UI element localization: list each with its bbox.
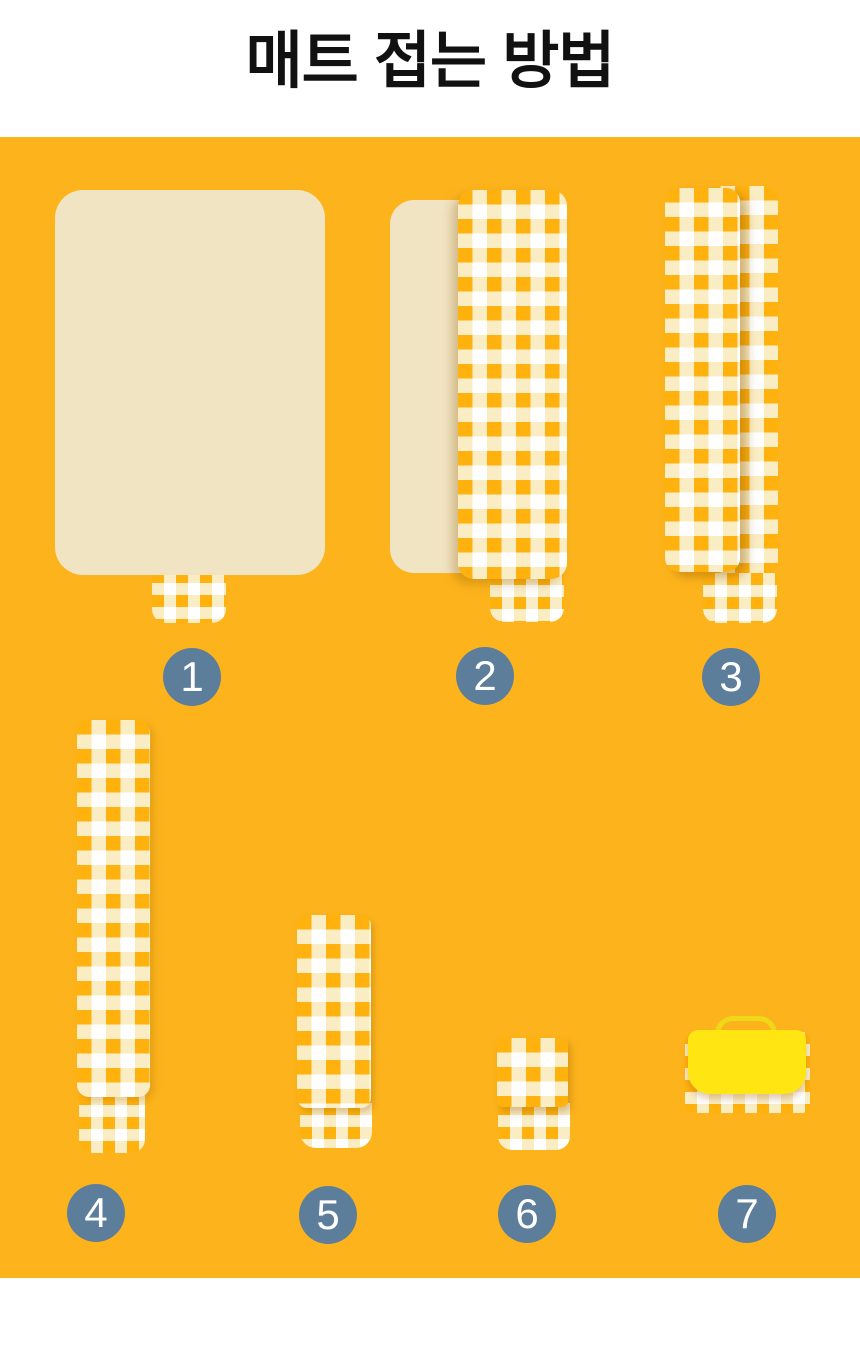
page-title: 매트 접는 방법 xyxy=(246,31,615,107)
instruction-panel: 1 2 3 4 5 6 7 xyxy=(0,137,860,1278)
strip-folded-quarter-icon xyxy=(497,1038,568,1107)
mat-tab-icon xyxy=(79,1093,145,1153)
step-3-badge: 3 xyxy=(702,648,760,706)
step-7-badge: 7 xyxy=(718,1185,776,1243)
mat-tab-icon xyxy=(152,571,226,623)
mat-tab-icon xyxy=(703,573,777,623)
step-1-badge: 1 xyxy=(163,648,221,706)
mat-tab-icon xyxy=(490,573,564,622)
mat-half-folded-icon xyxy=(458,190,567,579)
step-6-badge: 6 xyxy=(498,1185,556,1243)
step-2-badge: 2 xyxy=(456,647,514,705)
mat-tab-icon xyxy=(300,1103,372,1148)
strip-full-length-icon xyxy=(77,720,150,1097)
step-5-badge: 5 xyxy=(299,1186,357,1244)
product-infographic: 매트 접는 방법 1 2 3 4 5 6 7 xyxy=(0,0,860,1371)
header: 매트 접는 방법 xyxy=(0,0,860,137)
step-4-badge: 4 xyxy=(67,1184,125,1242)
packed-mat-flap-icon xyxy=(688,1030,806,1094)
mat-folded-strip-icon xyxy=(665,188,740,572)
strip-folded-half-icon xyxy=(297,915,371,1108)
mat-tab-icon xyxy=(498,1103,570,1150)
mat-unfolded-back-icon xyxy=(55,190,325,575)
